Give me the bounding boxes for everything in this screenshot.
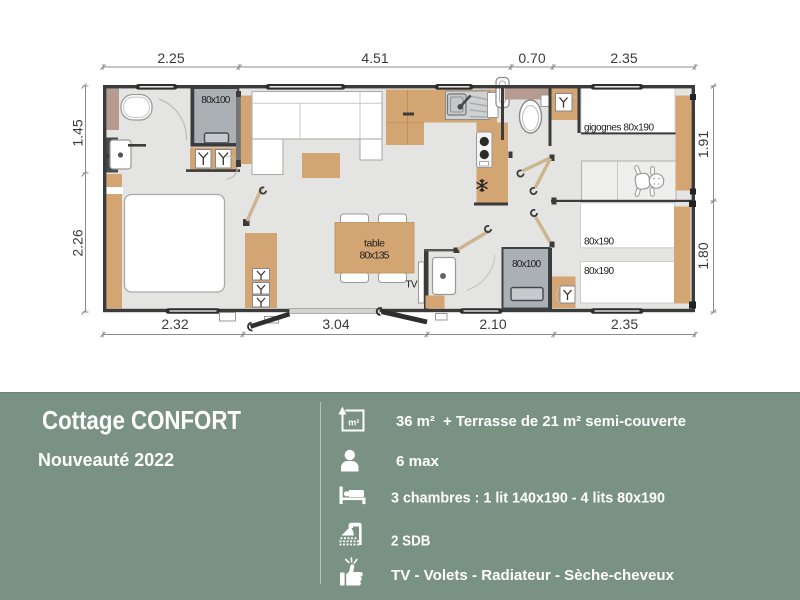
svg-text:2.35: 2.35 xyxy=(610,50,637,66)
svg-text:6 max: 6 max xyxy=(396,454,439,470)
svg-text:TV: TV xyxy=(406,280,418,291)
svg-text:80x135: 80x135 xyxy=(360,250,390,262)
svg-text:0.70: 0.70 xyxy=(518,50,545,66)
svg-text:3.04: 3.04 xyxy=(322,316,349,332)
svg-text:gigognes 80x190: gigognes 80x190 xyxy=(584,123,654,134)
svg-text:1.45: 1.45 xyxy=(70,119,86,146)
svg-text:2.10: 2.10 xyxy=(479,316,506,332)
svg-text:2.25: 2.25 xyxy=(157,50,184,66)
svg-text:m²: m² xyxy=(348,418,359,428)
svg-text:2.32: 2.32 xyxy=(161,316,188,332)
svg-text:2 SDB: 2 SDB xyxy=(391,534,431,550)
svg-text:4.51: 4.51 xyxy=(361,50,388,66)
svg-text:80x190: 80x190 xyxy=(584,237,614,248)
svg-text:80x100: 80x100 xyxy=(201,95,230,106)
svg-text:Nouveauté 2022: Nouveauté 2022 xyxy=(38,449,174,470)
svg-text:1.91: 1.91 xyxy=(695,131,711,158)
svg-text:table: table xyxy=(364,238,385,250)
svg-text:3 chambres : 1 lit 140x190 - 4: 3 chambres : 1 lit 140x190 - 4 lits 80x1… xyxy=(391,491,665,507)
svg-text:TV - Volets - Radiateur - Sèch: TV - Volets - Radiateur - Sèche-cheveux xyxy=(391,568,674,584)
svg-text:80x190: 80x190 xyxy=(584,266,614,277)
svg-text:2.35: 2.35 xyxy=(611,316,638,332)
svg-text:Cottage CONFORT: Cottage CONFORT xyxy=(42,405,241,435)
svg-text:36 m² + Terrasse de 21 m² sem: 36 m² + Terrasse de 21 m² semi-couverte xyxy=(396,414,686,430)
svg-text:1.80: 1.80 xyxy=(695,242,711,269)
svg-text:2.26: 2.26 xyxy=(70,229,86,256)
svg-text:80x100: 80x100 xyxy=(512,259,541,270)
